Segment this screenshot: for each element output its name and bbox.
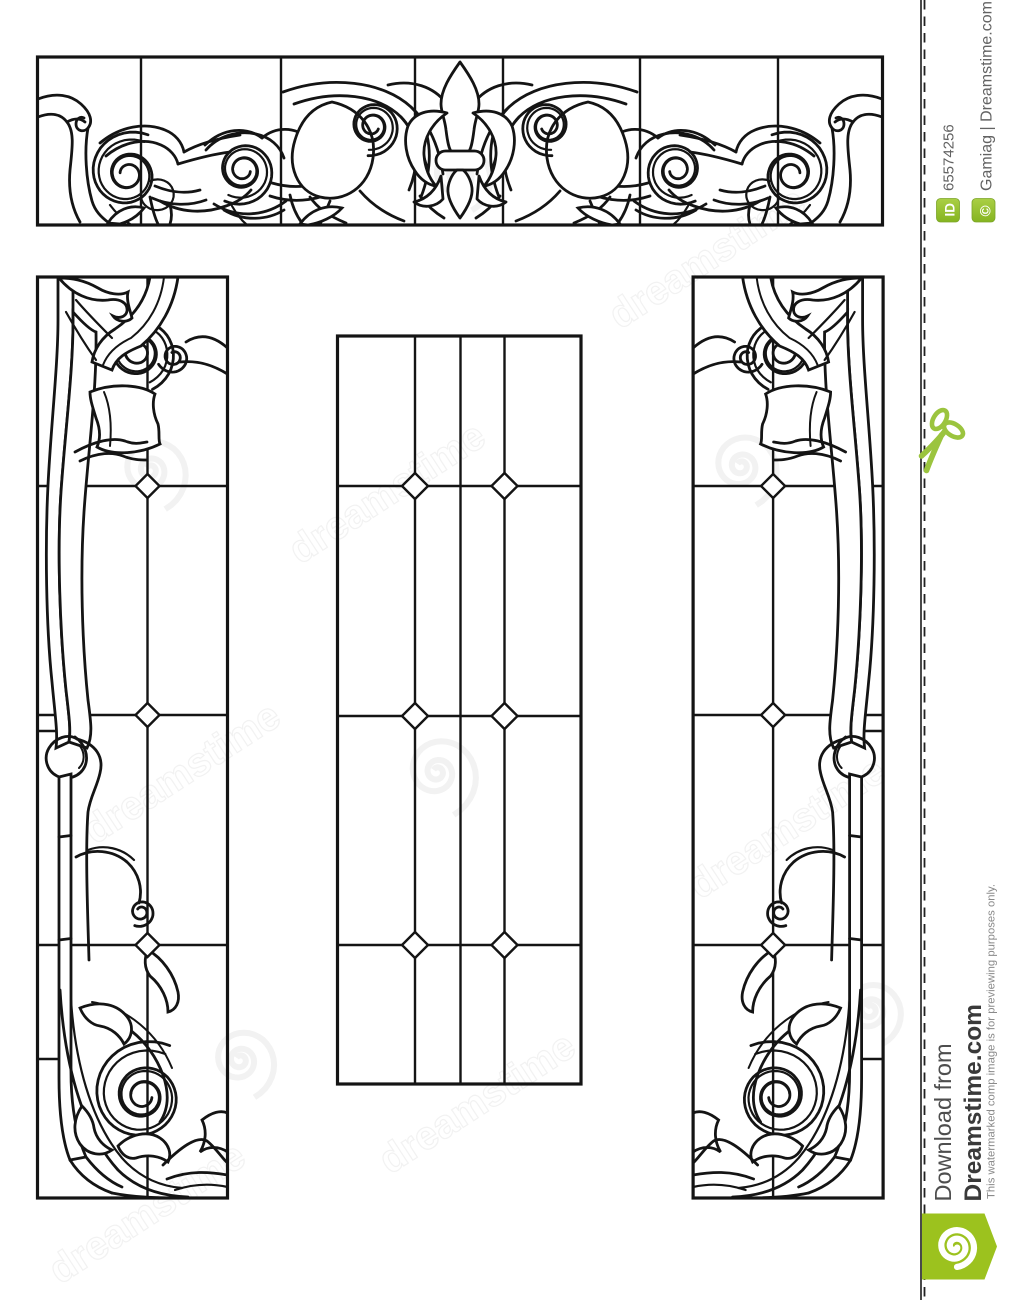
svg-text:Download from: Download from (930, 1043, 956, 1201)
svg-text:ID: ID (943, 203, 958, 217)
svg-text:Dreamstime.com: Dreamstime.com (960, 1004, 987, 1201)
svg-text:This watermarked comp image is: This watermarked comp image is for previ… (986, 884, 998, 1199)
svg-text:Gamiag | Dreamstime.com: Gamiag | Dreamstime.com (979, 1, 996, 191)
svg-text:©: © (978, 205, 995, 216)
svg-text:65574256: 65574256 (941, 124, 958, 191)
